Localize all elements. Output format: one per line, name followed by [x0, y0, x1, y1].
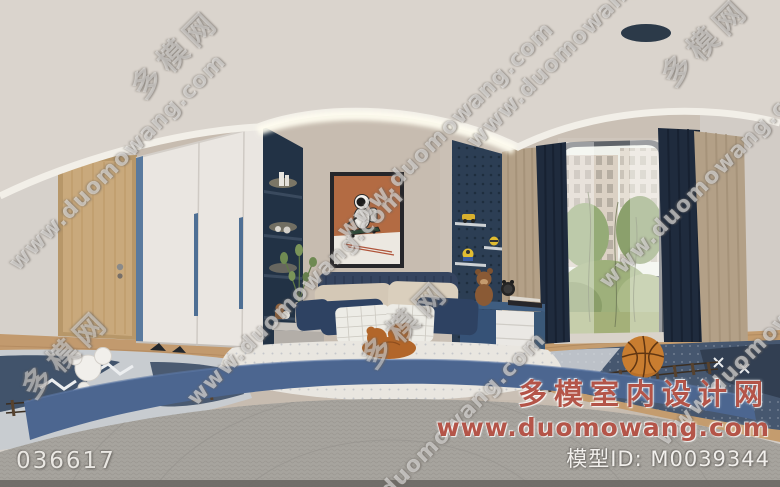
panorama-bedroom-photo: www.duomowang.com 多模网 www.duomowang.com …: [0, 0, 780, 487]
alarm-clock: [501, 280, 515, 296]
recessed-ceiling-light: [621, 24, 671, 42]
wardrobe-handle: [194, 213, 198, 316]
wood-entry-door: [58, 155, 137, 340]
wardrobe-blue-trim: [136, 156, 143, 342]
basketball: [622, 336, 664, 378]
niche-toy: [275, 226, 281, 232]
bunny-figurine: [282, 311, 290, 319]
image-id-label: 036617: [16, 448, 116, 474]
astronaut-skateboard-poster: [330, 172, 404, 268]
white-wardrobe: [136, 126, 263, 348]
wardrobe-handle: [239, 217, 243, 309]
site-name-label: 多模室内设计网: [437, 380, 770, 409]
toy-minion: [463, 249, 474, 262]
door-handle: [117, 264, 123, 270]
model-id-label: 模型ID: M0039344: [437, 449, 770, 470]
toy-minion-small: [490, 237, 499, 246]
site-watermark-block: 多模室内设计网 www.duomowang.com 模型ID: M0039344: [437, 380, 770, 470]
site-url-label: www.duomowang.com: [437, 415, 770, 440]
